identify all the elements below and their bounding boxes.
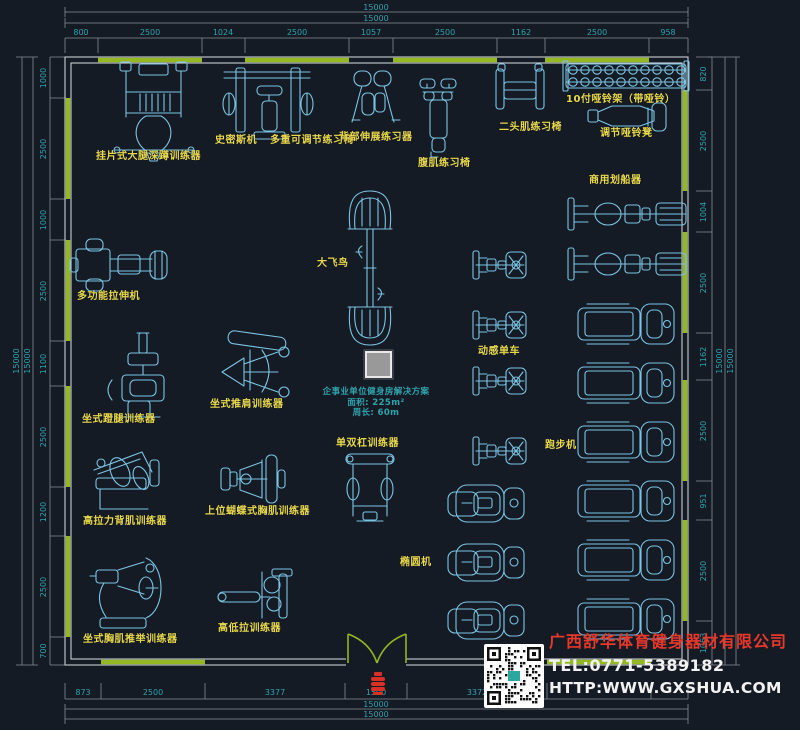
dimension-text: 873 (75, 688, 90, 697)
equipment-label-spin-bike: 动感单车 (478, 342, 520, 357)
dimension-text: 1000 (39, 210, 48, 230)
equipment-label-lat-pulldown: 高拉力背肌训练器 (83, 512, 167, 527)
equipment-label-elliptical: 椭圆机 (400, 553, 432, 568)
dimension-text: 15000 (12, 348, 21, 373)
dimension-text: 2500 (699, 273, 708, 293)
shoulder-press-drawing (222, 330, 289, 397)
equipment-label-squat-trainer: 挂片式大腿深蹲训练器 (96, 147, 201, 162)
dimension-text: 2500 (39, 139, 48, 159)
cad-floor-plan-canvas[interactable]: 1500015000800250010242500105725001162250… (0, 0, 800, 730)
dimension-text: 2500 (699, 561, 708, 581)
treadmill-drawings (578, 304, 674, 639)
dimension-text: 15000 (363, 14, 388, 23)
equipment-label-leg-press: 坐式蹬腿训练器 (82, 410, 156, 425)
chest-press-drawing (90, 558, 161, 628)
dimension-text: 1162 (699, 347, 708, 367)
equipment-label-back-extension: 背部伸展练习器 (339, 128, 413, 143)
dumbbell-rack-drawing (563, 61, 689, 91)
pec-fly-drawing (221, 455, 285, 503)
dimension-text: 2500 (699, 421, 708, 441)
dimension-text: 958 (660, 28, 675, 37)
equipment-label-dumbbell-bench: 调节哑铃凳 (600, 124, 653, 139)
dimension-text: 2500 (39, 427, 48, 447)
dimension-text: 1004 (699, 202, 708, 222)
qr-code-icon (484, 644, 544, 708)
dimension-text: 1000 (39, 68, 48, 88)
dimension-text: 1057 (361, 28, 381, 37)
dimension-text: 820 (699, 66, 708, 81)
dip-station-drawing (346, 454, 394, 521)
spin-bike-drawings (473, 251, 526, 465)
biceps-bench-drawing (496, 64, 544, 109)
back-extension-drawing (352, 71, 400, 122)
lat-pulldown-drawing (94, 452, 159, 509)
high-low-pulley-drawing (218, 569, 292, 618)
solution-perimeter: 周长: 60m (312, 408, 440, 419)
equipment-label-dip-station: 单双杠训练器 (336, 434, 399, 449)
dimension-text: 15000 (363, 710, 388, 719)
dimension-text: 2500 (39, 281, 48, 301)
dimension-text: 2500 (140, 28, 160, 37)
ab-bench-drawing (420, 79, 456, 157)
dimension-text: 2500 (143, 688, 163, 697)
center-column (364, 350, 393, 379)
company-website: HTTP:WWW.GXSHUA.COM (549, 679, 787, 697)
dimension-text: 3377 (265, 688, 285, 697)
solution-title: 企事业单位健身房解决方案 (312, 387, 440, 398)
dimension-text: 1100 (39, 354, 48, 374)
dimension-text: 1024 (213, 28, 233, 37)
stretch-machine-drawing (70, 239, 167, 291)
dimension-text: 2500 (435, 28, 455, 37)
leg-press-drawing (108, 333, 164, 417)
company-tel: TEL:0771-5389182 (549, 656, 787, 675)
dimension-text: 2500 (39, 577, 48, 597)
dimension-text: 2500 (587, 28, 607, 37)
dimension-text: 1200 (39, 502, 48, 522)
company-name: 广西舒华体育健身器材有限公司 (549, 628, 787, 652)
dimension-text: 2500 (287, 28, 307, 37)
equipment-label-biceps-bench: 二头肌练习椅 (499, 118, 562, 133)
dimension-text: 15000 (715, 348, 724, 373)
dimension-text: 700 (39, 643, 48, 658)
solution-area: 面积: 225m² (312, 398, 440, 409)
equipment-label-dumbbell-rack: 10付哑铃架（带哑铃） (566, 90, 675, 105)
dimension-text: 800 (73, 28, 88, 37)
equipment-label-chest-press: 坐式胸肌推举训练器 (83, 630, 178, 645)
dimension-text: 951 (699, 493, 708, 508)
equipment-label-ab-bench: 腹肌练习椅 (418, 154, 471, 169)
dimension-text: 15000 (23, 348, 32, 373)
cable-crossover-drawing (348, 191, 392, 345)
equipment-label-rowing-machine: 商用划船器 (589, 171, 642, 186)
elliptical-drawings (448, 485, 524, 639)
dimension-text: 15000 (363, 3, 388, 12)
equipment-label-stretch-machine: 多功能拉伸机 (77, 287, 140, 302)
dimension-text: 15000 (726, 348, 735, 373)
equipment-label-treadmill: 跑步机 (545, 436, 577, 451)
dimension-text: 15000 (363, 700, 388, 709)
solution-text: 企事业单位健身房解决方案 面积: 225m² 周长: 60m (312, 387, 440, 419)
equipment-label-pec-fly: 上位蝴蝶式胸肌训练器 (205, 502, 310, 517)
smith-machine-drawing (223, 68, 313, 132)
floor-plan-drawing: 1500015000800250010242500105725001162250… (0, 0, 800, 730)
company-info: 广西舒华体育健身器材有限公司 TEL:0771-5389182 HTTP:WWW… (549, 628, 787, 697)
equipment-label-smith-machine: 史密斯机 (215, 131, 257, 146)
equipment-label-shoulder-press: 坐式推肩训练器 (210, 395, 284, 410)
equipment-label-high-low-pulley: 高低拉训练器 (218, 619, 281, 634)
dimension-text: 2500 (699, 131, 708, 151)
dimension-text: 1162 (511, 28, 531, 37)
rowing-machine-drawings (568, 198, 686, 280)
equipment-label-cable-crossover: 大飞鸟 (317, 254, 349, 269)
